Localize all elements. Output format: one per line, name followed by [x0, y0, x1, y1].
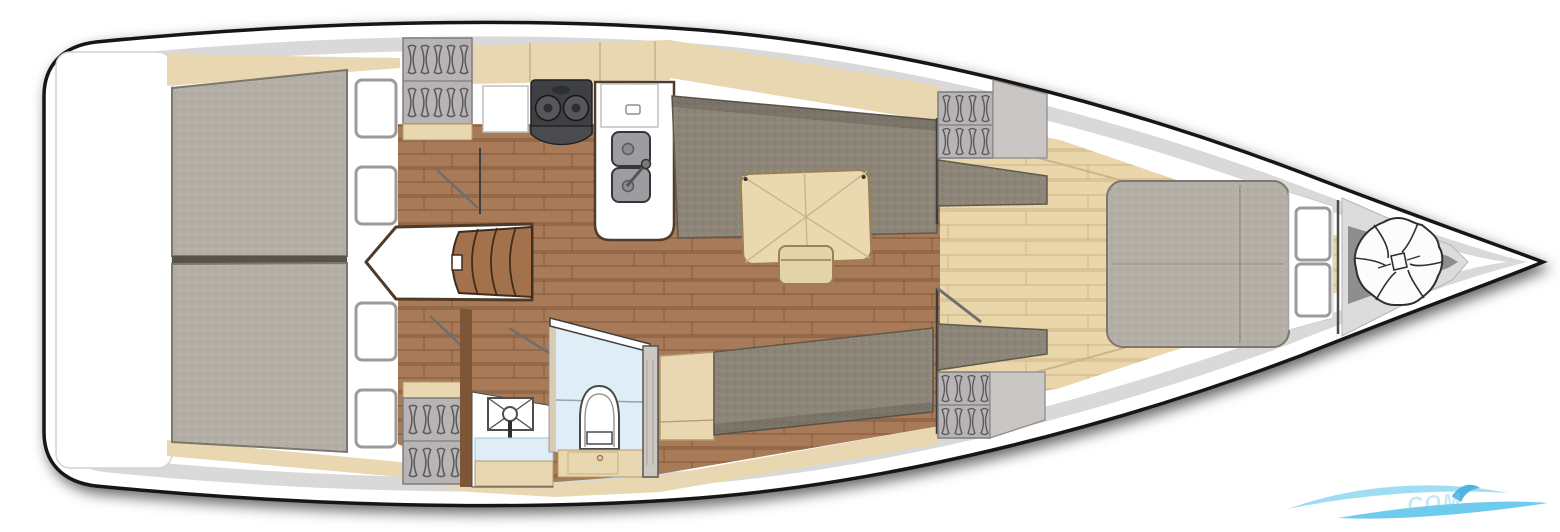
stove-burner-cap [544, 104, 553, 113]
stove [531, 80, 592, 145]
stove-pot-holder [552, 86, 570, 95]
stern-platform [56, 52, 172, 468]
deck-hatch [356, 167, 396, 224]
faucet [642, 160, 651, 169]
fwd-cabinet-top [993, 80, 1047, 158]
salon-bench [779, 246, 833, 284]
shower-cabinet [475, 461, 553, 486]
shower-tray [475, 438, 553, 461]
bow-hatch [1296, 208, 1330, 260]
deck-hatch [356, 303, 396, 360]
aft-berth-port [172, 70, 347, 256]
galley-counter-band [468, 40, 670, 84]
companionway [366, 224, 532, 300]
deck-hatch [356, 390, 396, 447]
head-divider [549, 326, 557, 452]
head-vanity [558, 450, 643, 477]
berth-gap [172, 256, 347, 263]
hanging-locker-fwd-top [938, 92, 993, 158]
hanging-locker-fwd-bottom [938, 372, 990, 438]
companionway-steps [452, 227, 532, 297]
watermark-text: COM [1406, 489, 1463, 517]
shower-drain [503, 407, 517, 421]
hanging-locker-aft-starboard [403, 382, 467, 484]
locker-drawer [403, 382, 467, 398]
deck-hatch [356, 80, 396, 137]
head-door [643, 346, 658, 477]
step-notch [452, 255, 462, 270]
galley-counter-left [483, 86, 528, 132]
stove-burner-cap [572, 104, 581, 113]
hanging-locker-aft-port [403, 38, 472, 140]
aft-berth-starboard [172, 263, 347, 452]
watermark: COM [1288, 485, 1548, 519]
head-wall-wood [460, 308, 472, 487]
beige-cabinet-head-end [660, 352, 714, 440]
icebox-latch [626, 105, 640, 114]
boat-floor-plan: COM [0, 0, 1560, 532]
locker-drawer [403, 124, 472, 140]
rope-coil-body [1355, 218, 1442, 305]
toilet-base [587, 432, 612, 444]
bow-hatch [1296, 264, 1330, 316]
sink-drain [623, 144, 634, 155]
